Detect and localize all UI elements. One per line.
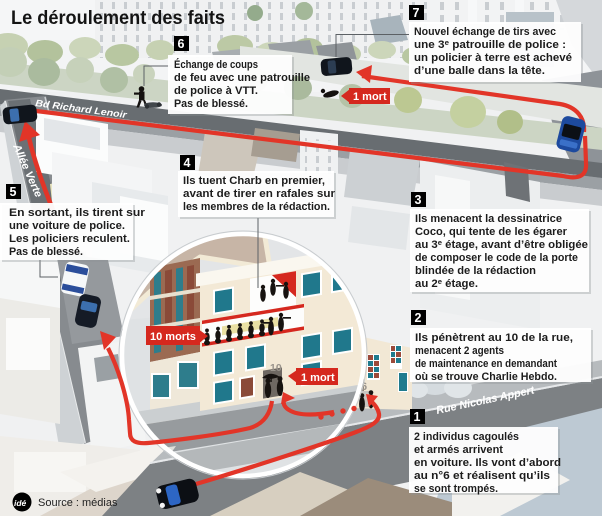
svg-text:Nouvel échange de tirs avec: Nouvel échange de tirs avec [414,26,556,38]
svg-text:Ils tuent Charb en premier,: Ils tuent Charb en premier, [183,175,325,187]
svg-text:un policier à terre est achevé: un policier à terre est achevé [414,52,572,64]
svg-text:En sortant, ils tirent sur: En sortant, ils tirent sur [9,207,146,219]
svg-text:blindée de la rédaction: blindée de la rédaction [415,265,536,277]
svg-text:Le déroulement des faits: Le déroulement des faits [11,7,225,29]
svg-text:1 mort: 1 mort [301,372,335,384]
svg-text:1: 1 [414,410,421,424]
svg-text:2: 2 [415,311,422,325]
svg-text:2 individus cagoulés: 2 individus cagoulés [414,431,519,443]
svg-text:3: 3 [415,193,422,207]
svg-text:se sont trompés.: se sont trompés. [414,483,498,495]
svg-text:où se trouve Charlie Hebdo.: où se trouve Charlie Hebdo. [415,371,557,383]
svg-text:de feu avec une patrouille: de feu avec une patrouille [174,72,310,84]
svg-text:1 mort: 1 mort [353,91,387,103]
svg-text:5: 5 [10,185,17,199]
svg-text:les membres de la rédaction.: les membres de la rédaction. [183,201,330,213]
svg-text:menacent 2 agents: menacent 2 agents [415,345,504,357]
svg-text:d’une balle dans la tête.: d’une balle dans la tête. [414,65,545,77]
svg-text:de police à VTT.: de police à VTT. [174,85,258,97]
svg-text:4: 4 [184,156,191,170]
svg-text:de maintenance en demandant: de maintenance en demandant [415,358,557,370]
svg-text:Pas de blessé.: Pas de blessé. [174,98,248,110]
svg-text:Source : médias: Source : médias [38,497,118,509]
svg-text:au n°6 et réalisent qu’ils: au n°6 et réalisent qu’ils [414,470,550,482]
svg-text:Échange de coups: Échange de coups [174,58,258,71]
svg-text:10 morts: 10 morts [150,331,196,343]
svg-text:avant de tirer en rafales sur: avant de tirer en rafales sur [183,188,336,200]
svg-text:Coco, qui tente de les égarer: Coco, qui tente de les égarer [415,226,568,238]
svg-text:6: 6 [178,37,185,51]
svg-text:7: 7 [413,6,420,20]
svg-text:idé: idé [14,498,27,508]
svg-text:une 3e patrouille de police :: une 3e patrouille de police : [414,38,566,51]
svg-text:Ils pénètrent au 10 de la rue,: Ils pénètrent au 10 de la rue, [415,332,573,344]
svg-text:et armés arrivent: et armés arrivent [414,444,503,456]
svg-text:au 2e étage.: au 2e étage. [415,277,478,290]
svg-text:Les policiers reculent.: Les policiers reculent. [9,233,130,245]
svg-text:une voiture de police.: une voiture de police. [9,220,125,232]
svg-text:Ils menacent la dessinatrice: Ils menacent la dessinatrice [415,213,562,225]
svg-text:de composer le code de la port: de composer le code de la porte [415,252,578,264]
svg-text:Pas de blessé.: Pas de blessé. [9,246,83,258]
svg-text:en voiture. Ils vont d’abord: en voiture. Ils vont d’abord [414,457,561,469]
svg-text:10: 10 [270,362,282,374]
